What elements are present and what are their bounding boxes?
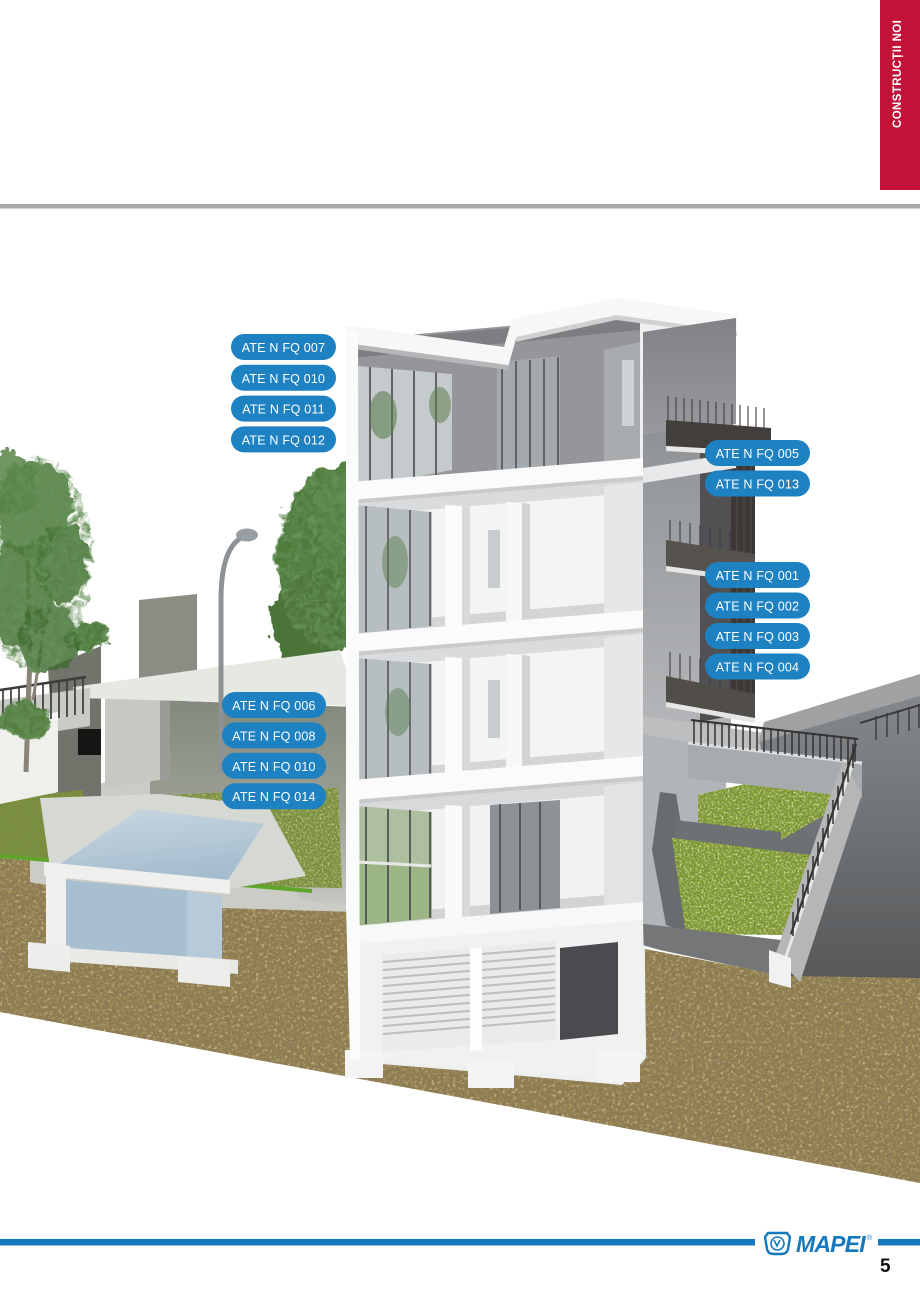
svg-text:MAPEI: MAPEI [796,1231,866,1257]
svg-text:ATE N FQ 012: ATE N FQ 012 [242,433,325,447]
svg-text:ATE N FQ 014: ATE N FQ 014 [232,790,315,804]
svg-text:ATE N FQ 013: ATE N FQ 013 [716,478,799,492]
svg-text:ATE N FQ 010: ATE N FQ 010 [232,760,315,774]
svg-text:ATE N FQ 011: ATE N FQ 011 [242,403,325,417]
svg-text:ATE N FQ 010: ATE N FQ 010 [242,372,325,386]
svg-text:ATE N FQ 002: ATE N FQ 002 [716,600,799,614]
svg-text:CONSTRUCȚII NOI: CONSTRUCȚII NOI [892,20,904,128]
svg-text:ATE N FQ 001: ATE N FQ 001 [716,569,799,583]
svg-text:ATE N FQ 003: ATE N FQ 003 [716,630,799,644]
svg-text:5: 5 [880,1256,891,1277]
svg-text:®: ® [867,1234,873,1242]
svg-text:ATE N FQ 008: ATE N FQ 008 [232,729,315,743]
svg-text:ATE N FQ 005: ATE N FQ 005 [716,447,799,461]
svg-text:ATE N FQ 004: ATE N FQ 004 [716,661,799,675]
svg-text:ATE N FQ 006: ATE N FQ 006 [232,699,315,713]
svg-text:ATE N FQ 007: ATE N FQ 007 [242,341,325,355]
